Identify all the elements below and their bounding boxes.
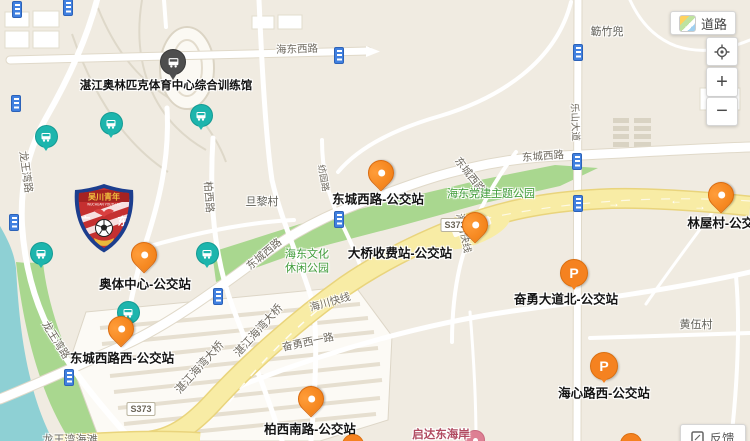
bus-icon bbox=[167, 56, 180, 69]
transit-stop-icon[interactable] bbox=[64, 369, 74, 386]
transit-stop-icon[interactable] bbox=[573, 195, 583, 212]
locate-button[interactable] bbox=[706, 37, 738, 66]
bus-stop-label[interactable]: 奋勇大道北-公交站 bbox=[514, 289, 618, 308]
park-label: 海东党建主题公园 bbox=[447, 188, 535, 202]
bus-stop-label[interactable]: 大桥收费站-公交站 bbox=[348, 243, 452, 262]
road-direction-arrow: → bbox=[608, 196, 620, 210]
bus-stop-circle-marker[interactable] bbox=[100, 112, 123, 135]
transit-stop-icon[interactable] bbox=[334, 47, 344, 64]
bus-stop-circle-marker[interactable] bbox=[196, 242, 219, 265]
venue-label: 湛江奥林匹克体育中心综合训练馆 bbox=[80, 77, 253, 93]
zoom-in-button[interactable]: + bbox=[706, 67, 738, 97]
park-label: 海东文化 休闲公园 bbox=[285, 248, 329, 276]
p-balloon-marker[interactable]: P bbox=[590, 352, 618, 380]
village-label: 黄伍村 bbox=[680, 316, 713, 332]
transit-stop-icon[interactable] bbox=[572, 153, 582, 170]
transit-stop-icon[interactable] bbox=[9, 214, 19, 231]
transit-stop-icon[interactable] bbox=[12, 1, 22, 18]
transit-stop-icon[interactable] bbox=[573, 44, 583, 61]
soccer-ball-icon bbox=[96, 220, 113, 237]
road-label: 东城西路 bbox=[522, 147, 565, 165]
badge-club-name-en: WUCHUAN YOUTH FC bbox=[87, 203, 121, 207]
marker-tail bbox=[37, 262, 45, 272]
road-label: 乐山大道 bbox=[568, 103, 583, 141]
crosshair-icon bbox=[714, 44, 730, 60]
bus-stop-label[interactable]: 东城西路-公交站 bbox=[332, 189, 424, 208]
transit-stop-icon[interactable] bbox=[213, 288, 223, 305]
bus-icon bbox=[35, 248, 47, 260]
map-application: 海东西路东城西路东城西路东城西路龙王湾路龙王湾路柏西路纺园路乐山大道海川快线海川… bbox=[0, 0, 750, 441]
transit-stop-icon[interactable] bbox=[63, 0, 73, 16]
transit-stop-icon[interactable] bbox=[11, 95, 21, 112]
bus-stop-label[interactable]: 东城西路西-公交站 bbox=[70, 348, 174, 367]
village-label: 旦黎村 bbox=[246, 193, 279, 209]
club-badge: 吴川青年 WUCHUAN YOUTH FC 广 东 bbox=[72, 183, 136, 253]
venue-marker[interactable] bbox=[160, 49, 186, 75]
bus-stop-label[interactable]: 林屋村-公交站 bbox=[687, 213, 750, 232]
feedback-button[interactable]: 反馈 bbox=[680, 424, 746, 441]
badge-club-name-cn: 吴川青年 bbox=[88, 192, 120, 202]
p-balloon-marker[interactable]: P bbox=[560, 259, 588, 287]
bus-icon bbox=[40, 131, 52, 143]
bus-stop-label[interactable]: 海心路西-公交站 bbox=[558, 383, 650, 402]
marker-tail bbox=[203, 262, 211, 272]
marker-tail bbox=[197, 124, 205, 134]
marker-tail bbox=[107, 132, 115, 142]
bus-stop-label[interactable]: 奥体中心-公交站 bbox=[99, 274, 191, 293]
p-glyph: P bbox=[569, 265, 578, 281]
route-shield-s373: S373 bbox=[126, 402, 155, 416]
bus-icon bbox=[201, 248, 213, 260]
bus-stop-circle-marker[interactable] bbox=[35, 125, 58, 148]
marker-tail bbox=[42, 145, 50, 155]
bus-stop-circle-marker[interactable] bbox=[30, 242, 53, 265]
map-type-button[interactable]: 道路 bbox=[670, 11, 736, 35]
bus-stop-circle-marker[interactable] bbox=[190, 104, 213, 127]
bus-icon bbox=[105, 118, 117, 130]
map-layers-icon bbox=[679, 15, 696, 32]
village-label: 簕竹兜 bbox=[591, 23, 624, 39]
feedback-label: 反馈 bbox=[709, 428, 734, 441]
road-direction-arrow: → bbox=[694, 199, 706, 213]
road-label: 海东西路 bbox=[276, 41, 318, 57]
p-glyph: P bbox=[599, 358, 608, 374]
road-direction-arrow: ← bbox=[670, 193, 682, 207]
map-type-label: 道路 bbox=[701, 14, 727, 33]
bus-icon bbox=[195, 110, 207, 122]
resort-label: 启达东海岸 bbox=[412, 426, 470, 441]
beach-label: 龙王湾海滩 bbox=[43, 431, 98, 441]
road-label: 柏西路 bbox=[200, 181, 217, 213]
bus-stop-label[interactable]: 柏西南路-公交站 bbox=[264, 419, 356, 438]
feedback-icon bbox=[691, 431, 704, 441]
transit-stop-icon[interactable] bbox=[334, 211, 344, 228]
zoom-out-button[interactable]: − bbox=[706, 97, 738, 126]
